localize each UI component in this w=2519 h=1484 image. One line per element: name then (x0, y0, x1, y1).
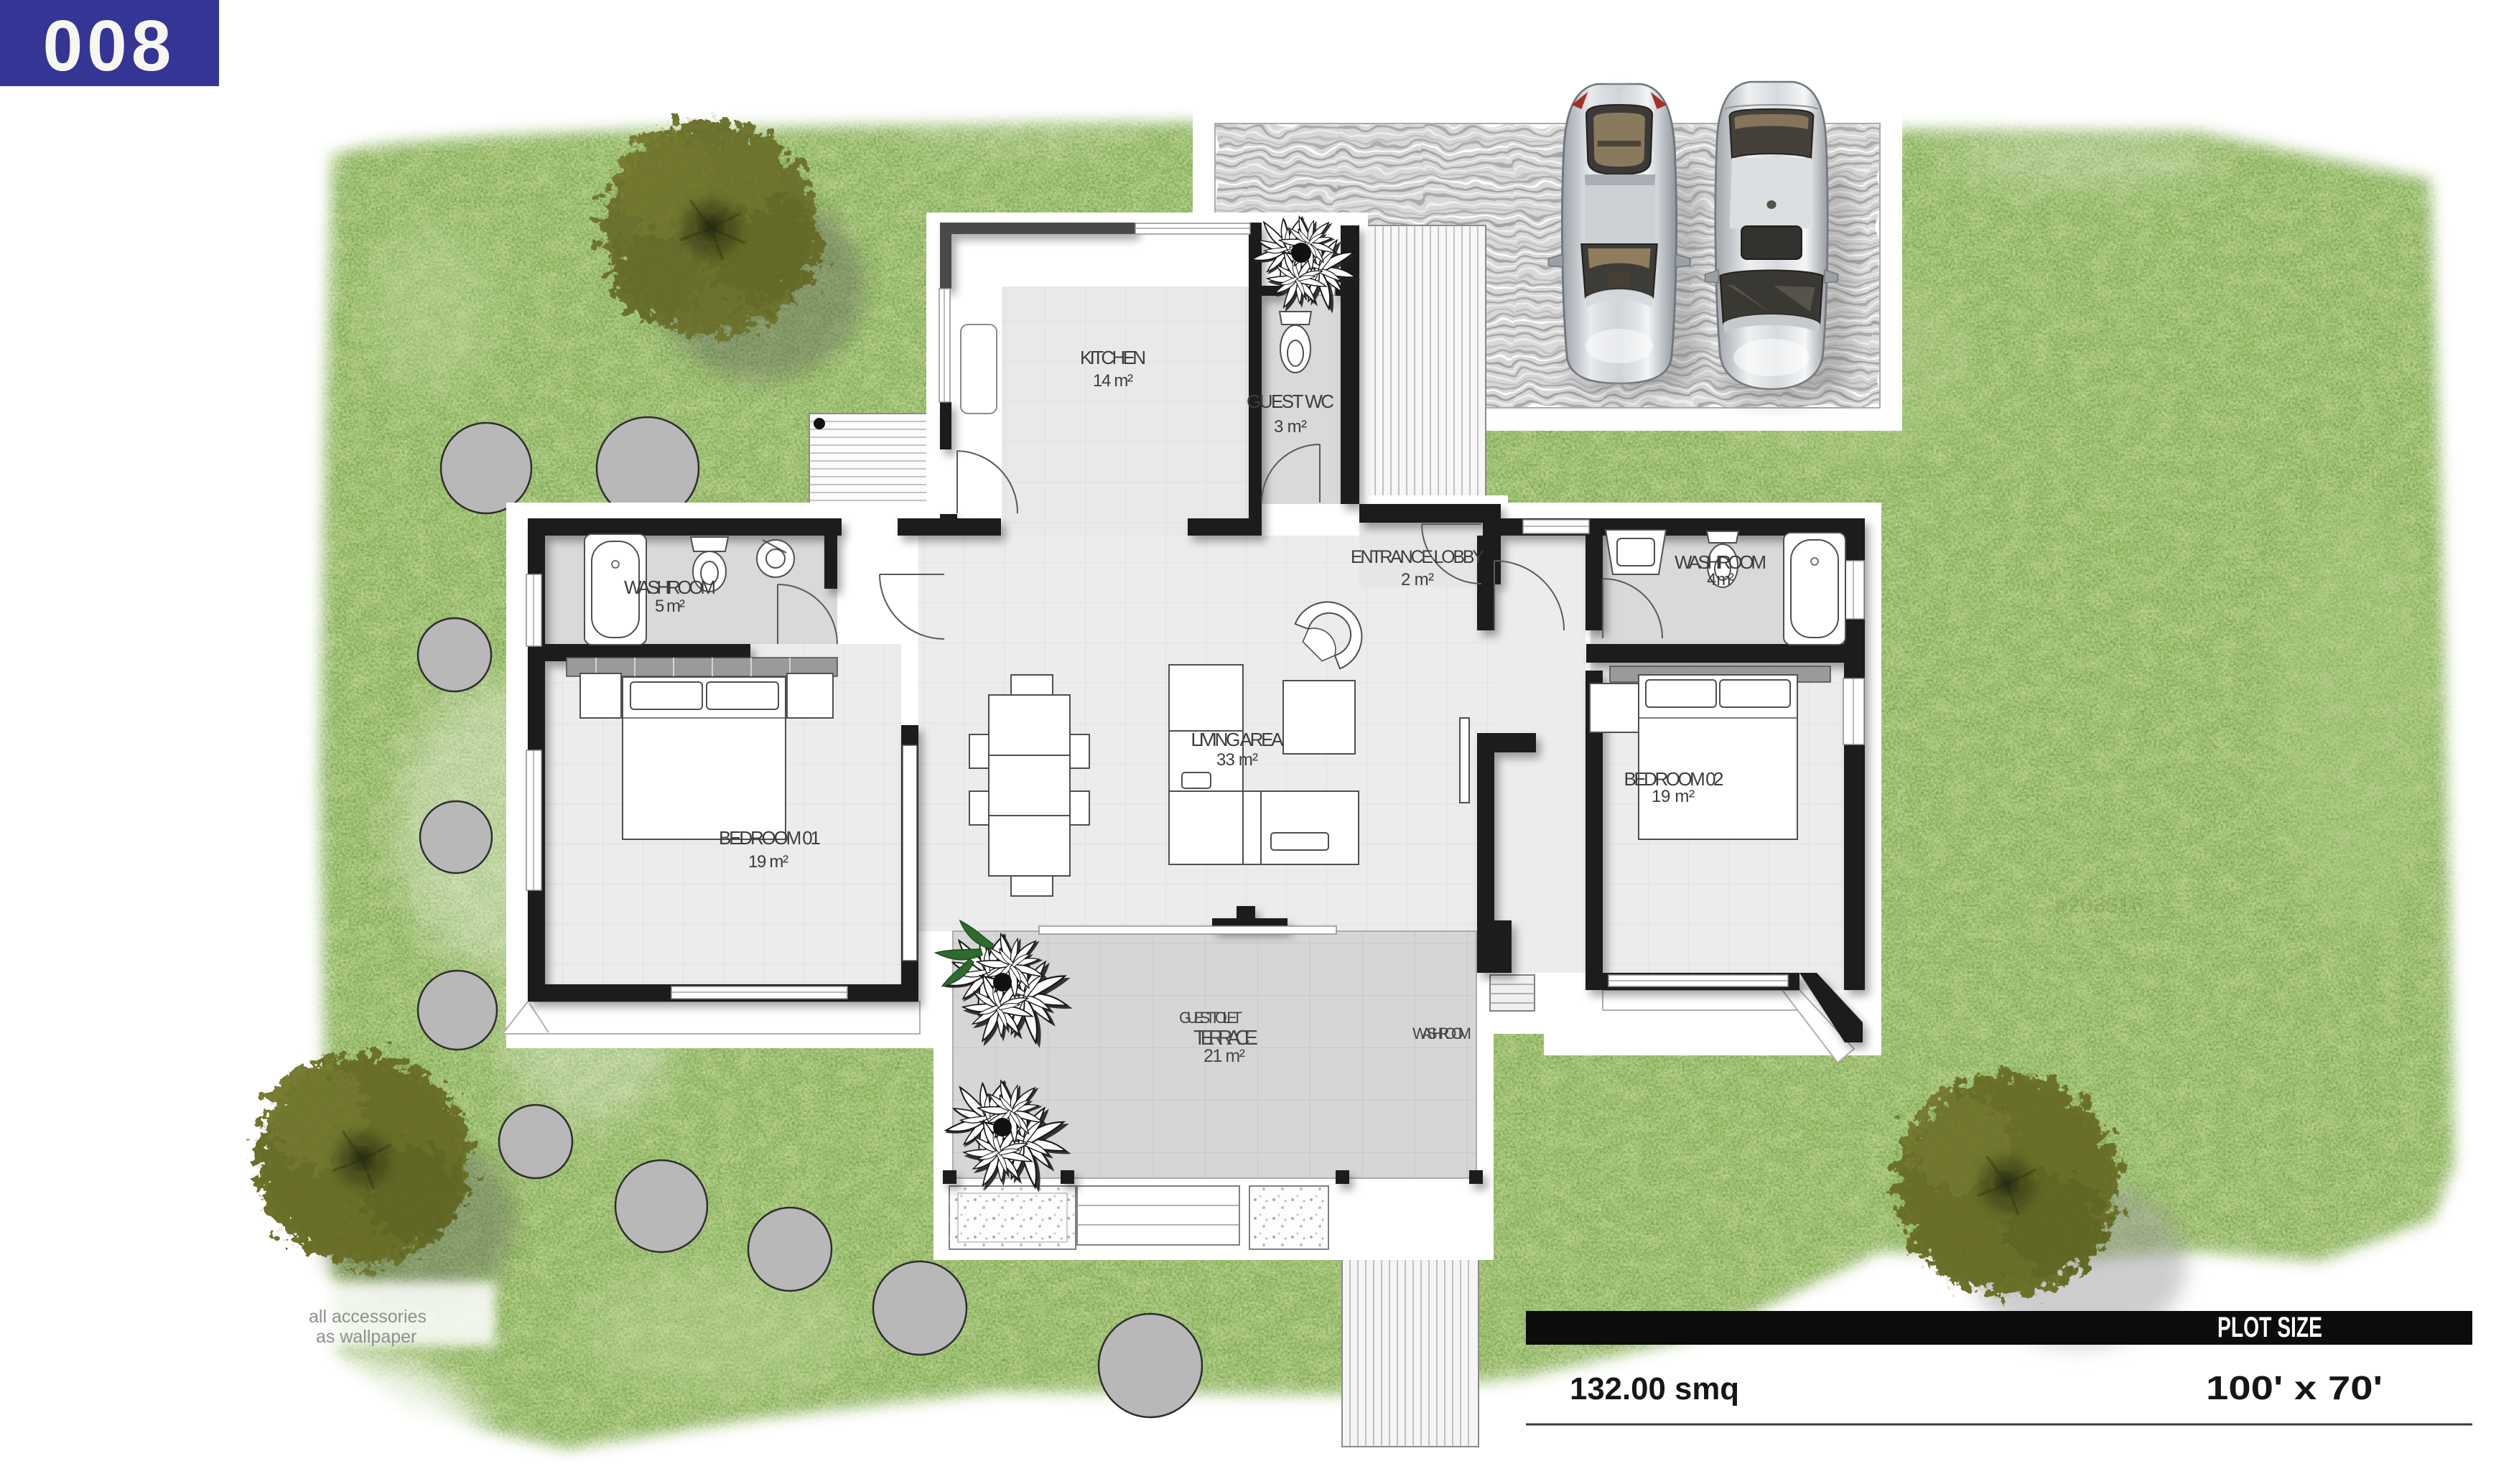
svg-text:008: 008 (43, 6, 176, 86)
svg-text:ENTRANCE LOBBY: ENTRANCE LOBBY (1351, 547, 1484, 567)
svg-text:19 m²: 19 m² (1652, 787, 1695, 806)
svg-text:21 m²: 21 m² (1203, 1046, 1245, 1066)
svg-text:19 m²: 19 m² (748, 852, 788, 872)
svg-text:as wallpaper: as wallpaper (316, 1327, 416, 1347)
svg-text:2 m²: 2 m² (1401, 570, 1434, 589)
svg-text:GUEST WC: GUEST WC (1247, 391, 1334, 412)
svg-text:LIVING AREA: LIVING AREA (1191, 729, 1285, 750)
svg-text:#203516: #203516 (2055, 894, 2144, 918)
svg-text:WASHROOM: WASHROOM (624, 577, 716, 598)
svg-text:all accessories: all accessories (309, 1307, 427, 1327)
svg-text:132.00 smq: 132.00 smq (1570, 1371, 1739, 1406)
svg-text:GUEST TOILET: GUEST TOILET (1179, 1009, 1242, 1027)
svg-text:KITCHEN: KITCHEN (1080, 347, 1146, 368)
svg-text:3 m²: 3 m² (1274, 417, 1307, 437)
svg-text:4 m²: 4 m² (1707, 570, 1734, 589)
svg-text:WASHROOM: WASHROOM (1412, 1025, 1471, 1042)
svg-text:33 m²: 33 m² (1216, 750, 1258, 770)
svg-text:PLOT SIZE: PLOT SIZE (2217, 1312, 2322, 1343)
svg-text:BEDROOM 01: BEDROOM 01 (719, 827, 821, 849)
svg-text:14 m²: 14 m² (1093, 371, 1133, 391)
svg-text:5 m²: 5 m² (655, 597, 685, 616)
svg-text:100' x 70': 100' x 70' (2206, 1369, 2383, 1406)
